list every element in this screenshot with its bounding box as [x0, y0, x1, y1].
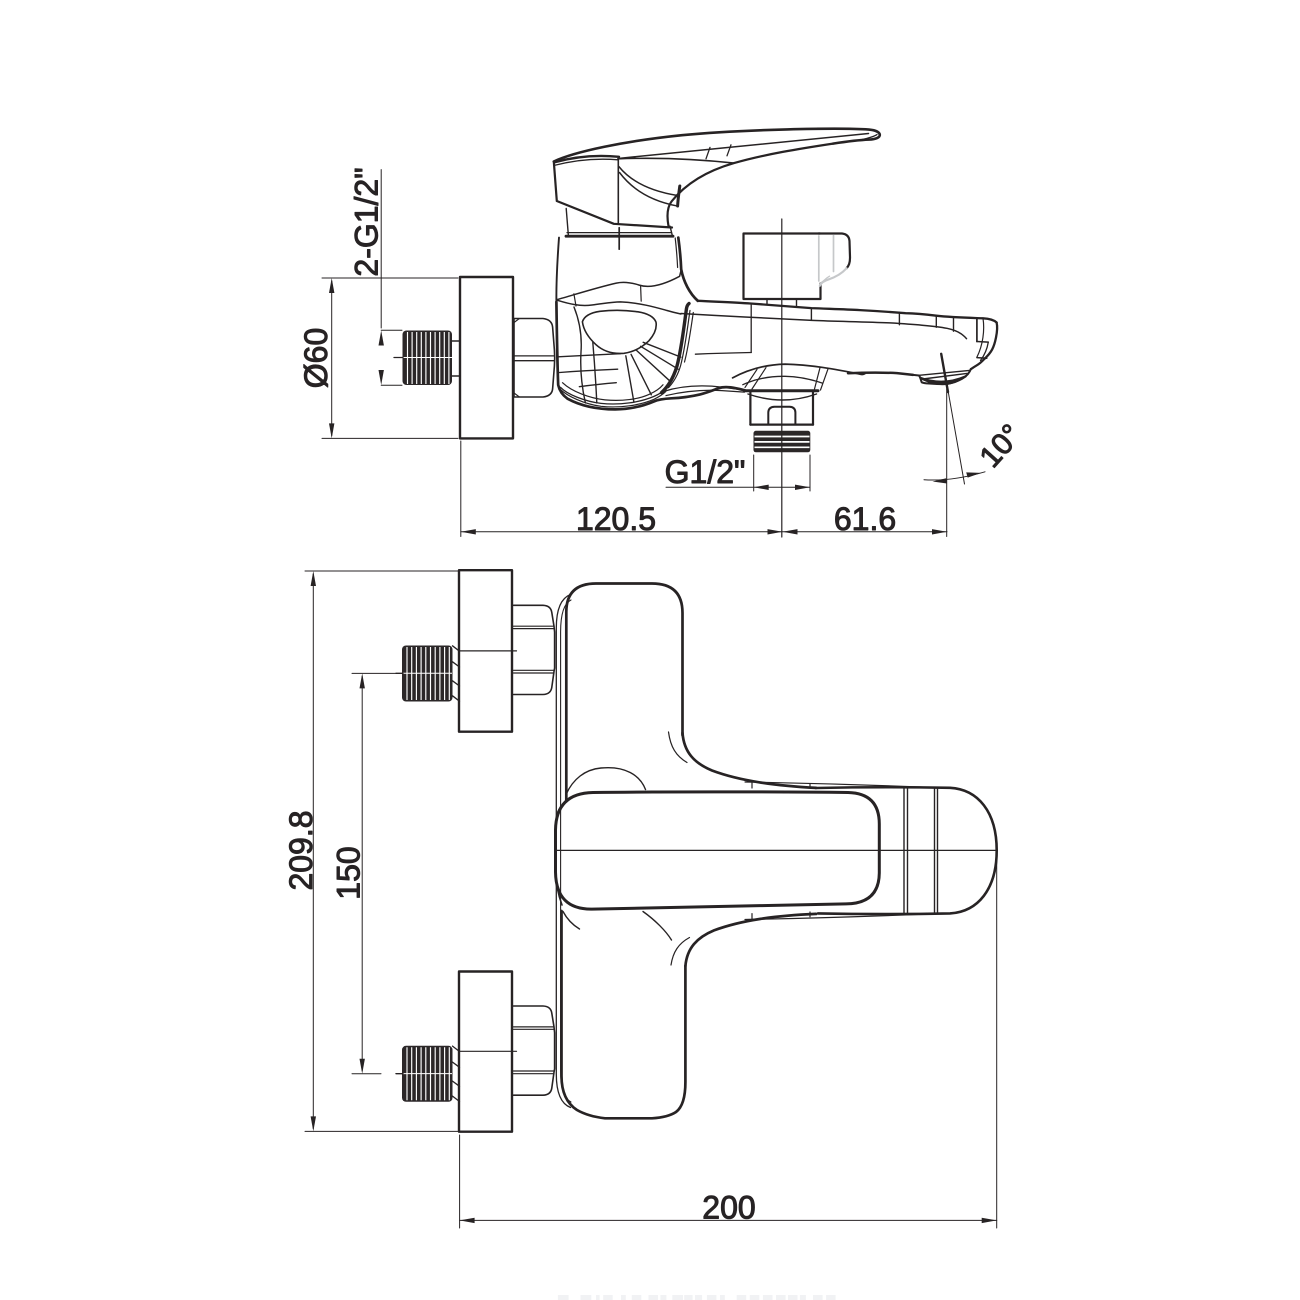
- svg-text:G1/2": G1/2": [665, 454, 746, 490]
- svg-text:200: 200: [702, 1190, 755, 1226]
- svg-text:120.5: 120.5: [576, 501, 656, 537]
- svg-text:61.6: 61.6: [834, 501, 896, 537]
- svg-text:Ø60: Ø60: [298, 328, 334, 388]
- svg-text:150: 150: [331, 846, 367, 899]
- svg-text:10°: 10°: [973, 418, 1028, 474]
- svg-text:2-G1/2": 2-G1/2": [349, 167, 385, 276]
- svg-text:209.8: 209.8: [283, 810, 319, 890]
